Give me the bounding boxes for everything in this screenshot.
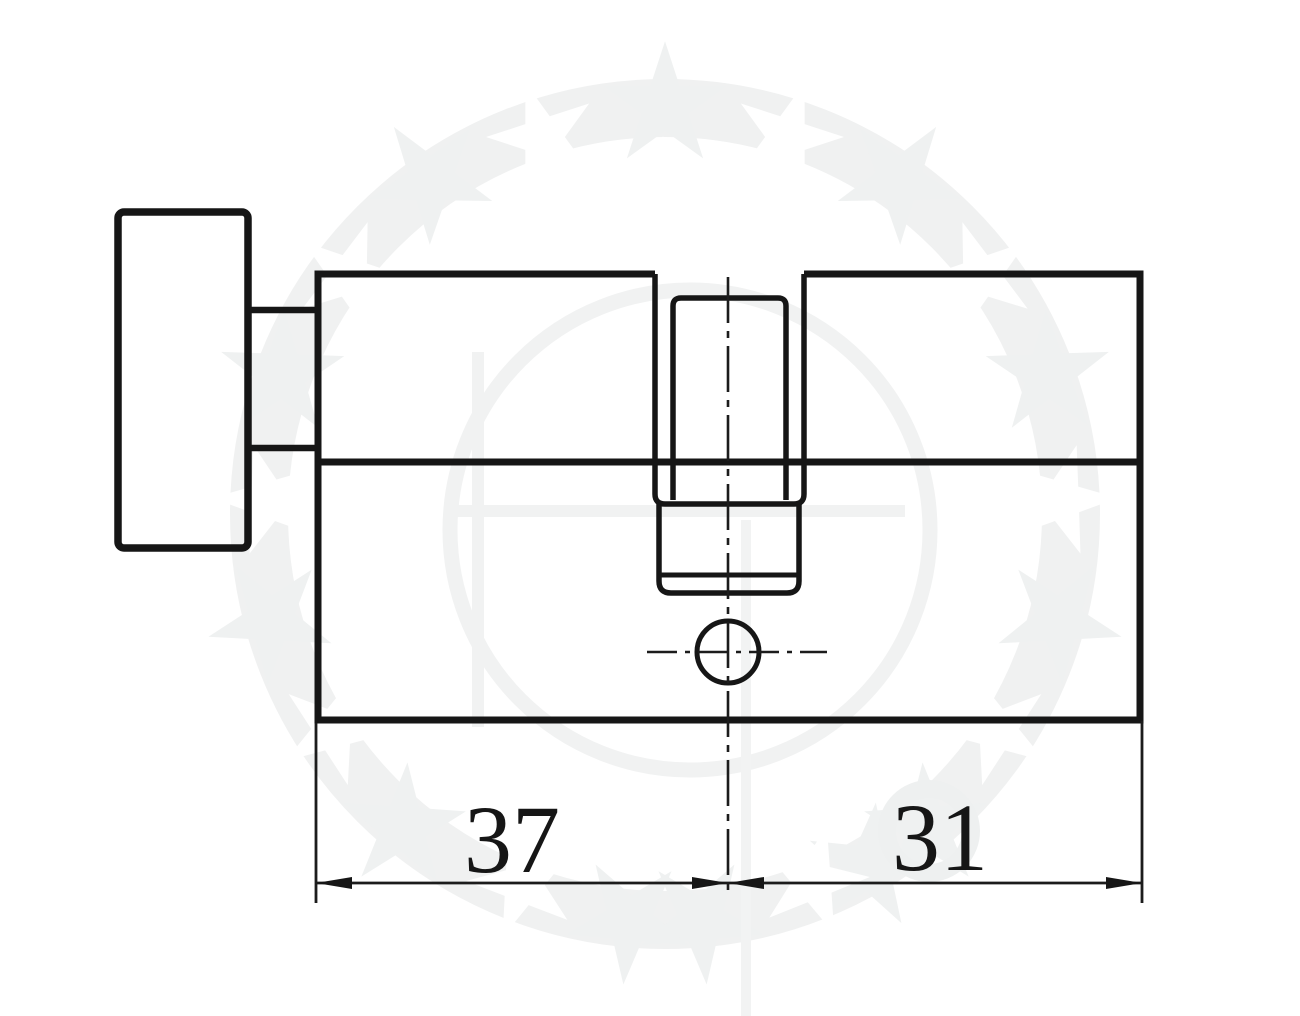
cylinder-lock-technical-drawing: 37 31 xyxy=(0,0,1300,1016)
technical-drawing-page: 37 31 xyxy=(0,0,1300,1016)
watermark-cross-vertical xyxy=(472,352,484,727)
watermark-inner-ring xyxy=(450,290,930,770)
cam-ring xyxy=(673,298,786,500)
dimension-arrow-left xyxy=(316,877,352,889)
dimension-arrow-right xyxy=(1106,877,1142,889)
watermark-emblem xyxy=(192,41,1137,1016)
watermark-cross-horizontal xyxy=(455,505,905,517)
dimension-label-left: 37 xyxy=(464,786,560,893)
dimension-label-right: 31 xyxy=(892,784,988,891)
